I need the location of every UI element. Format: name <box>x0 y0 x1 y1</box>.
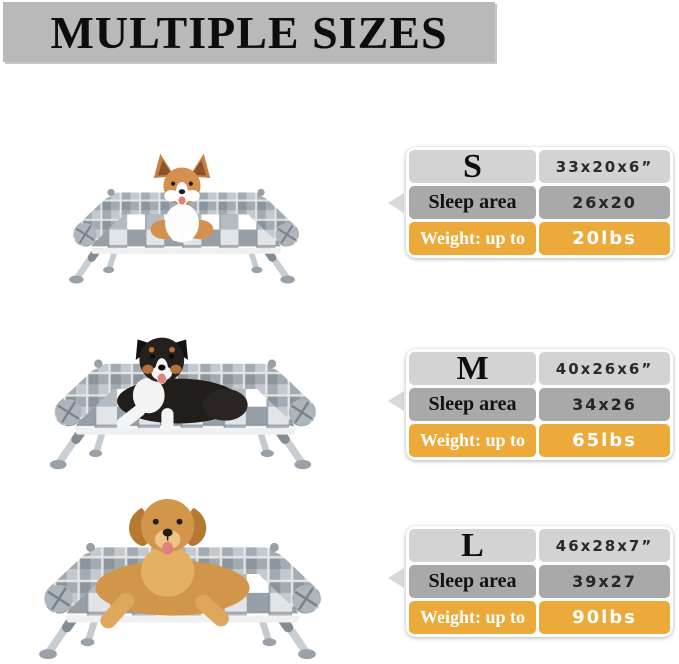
page-title: MULTIPLE SIZES <box>50 6 447 59</box>
weight-label: Weight: up to <box>409 222 536 255</box>
sleep-area-label: Sleep area <box>409 565 536 598</box>
header-banner: MULTIPLE SIZES <box>3 2 495 62</box>
spec-table-large: L 46x28x7” Sleep area 39x27 Weight: up t… <box>406 526 673 637</box>
arrow-left-icon <box>388 568 404 588</box>
sleep-area-label: Sleep area <box>409 186 536 219</box>
arrow-left-icon <box>388 193 404 213</box>
spec-table-small: S 33x20x6” Sleep area 26x20 Weight: up t… <box>406 147 673 258</box>
size-letter: M <box>409 352 536 385</box>
weight-value: 20lbs <box>539 222 670 255</box>
product-photo-medium <box>28 332 333 472</box>
sleep-area-value: 26x20 <box>539 186 670 219</box>
weight-value: 65lbs <box>539 424 670 457</box>
weight-label: Weight: up to <box>409 424 536 457</box>
size-dimensions: 46x28x7” <box>539 529 670 562</box>
weight-label: Weight: up to <box>409 601 536 634</box>
infographic-canvas: MULTIPLE SIZES <box>0 0 679 664</box>
size-letter: L <box>409 529 536 562</box>
size-letter: S <box>409 150 536 183</box>
spec-table-medium: M 40x26x6” Sleep area 34x26 Weight: up t… <box>406 349 673 460</box>
weight-value: 90lbs <box>539 601 670 634</box>
sleep-area-value: 34x26 <box>539 388 670 421</box>
sleep-area-value: 39x27 <box>539 565 670 598</box>
size-dimensions: 33x20x6” <box>539 150 670 183</box>
size-dimensions: 40x26x6” <box>539 352 670 385</box>
product-photo-small <box>53 126 311 286</box>
arrow-left-icon <box>388 391 404 411</box>
product-photo-large <box>5 494 350 664</box>
sleep-area-label: Sleep area <box>409 388 536 421</box>
